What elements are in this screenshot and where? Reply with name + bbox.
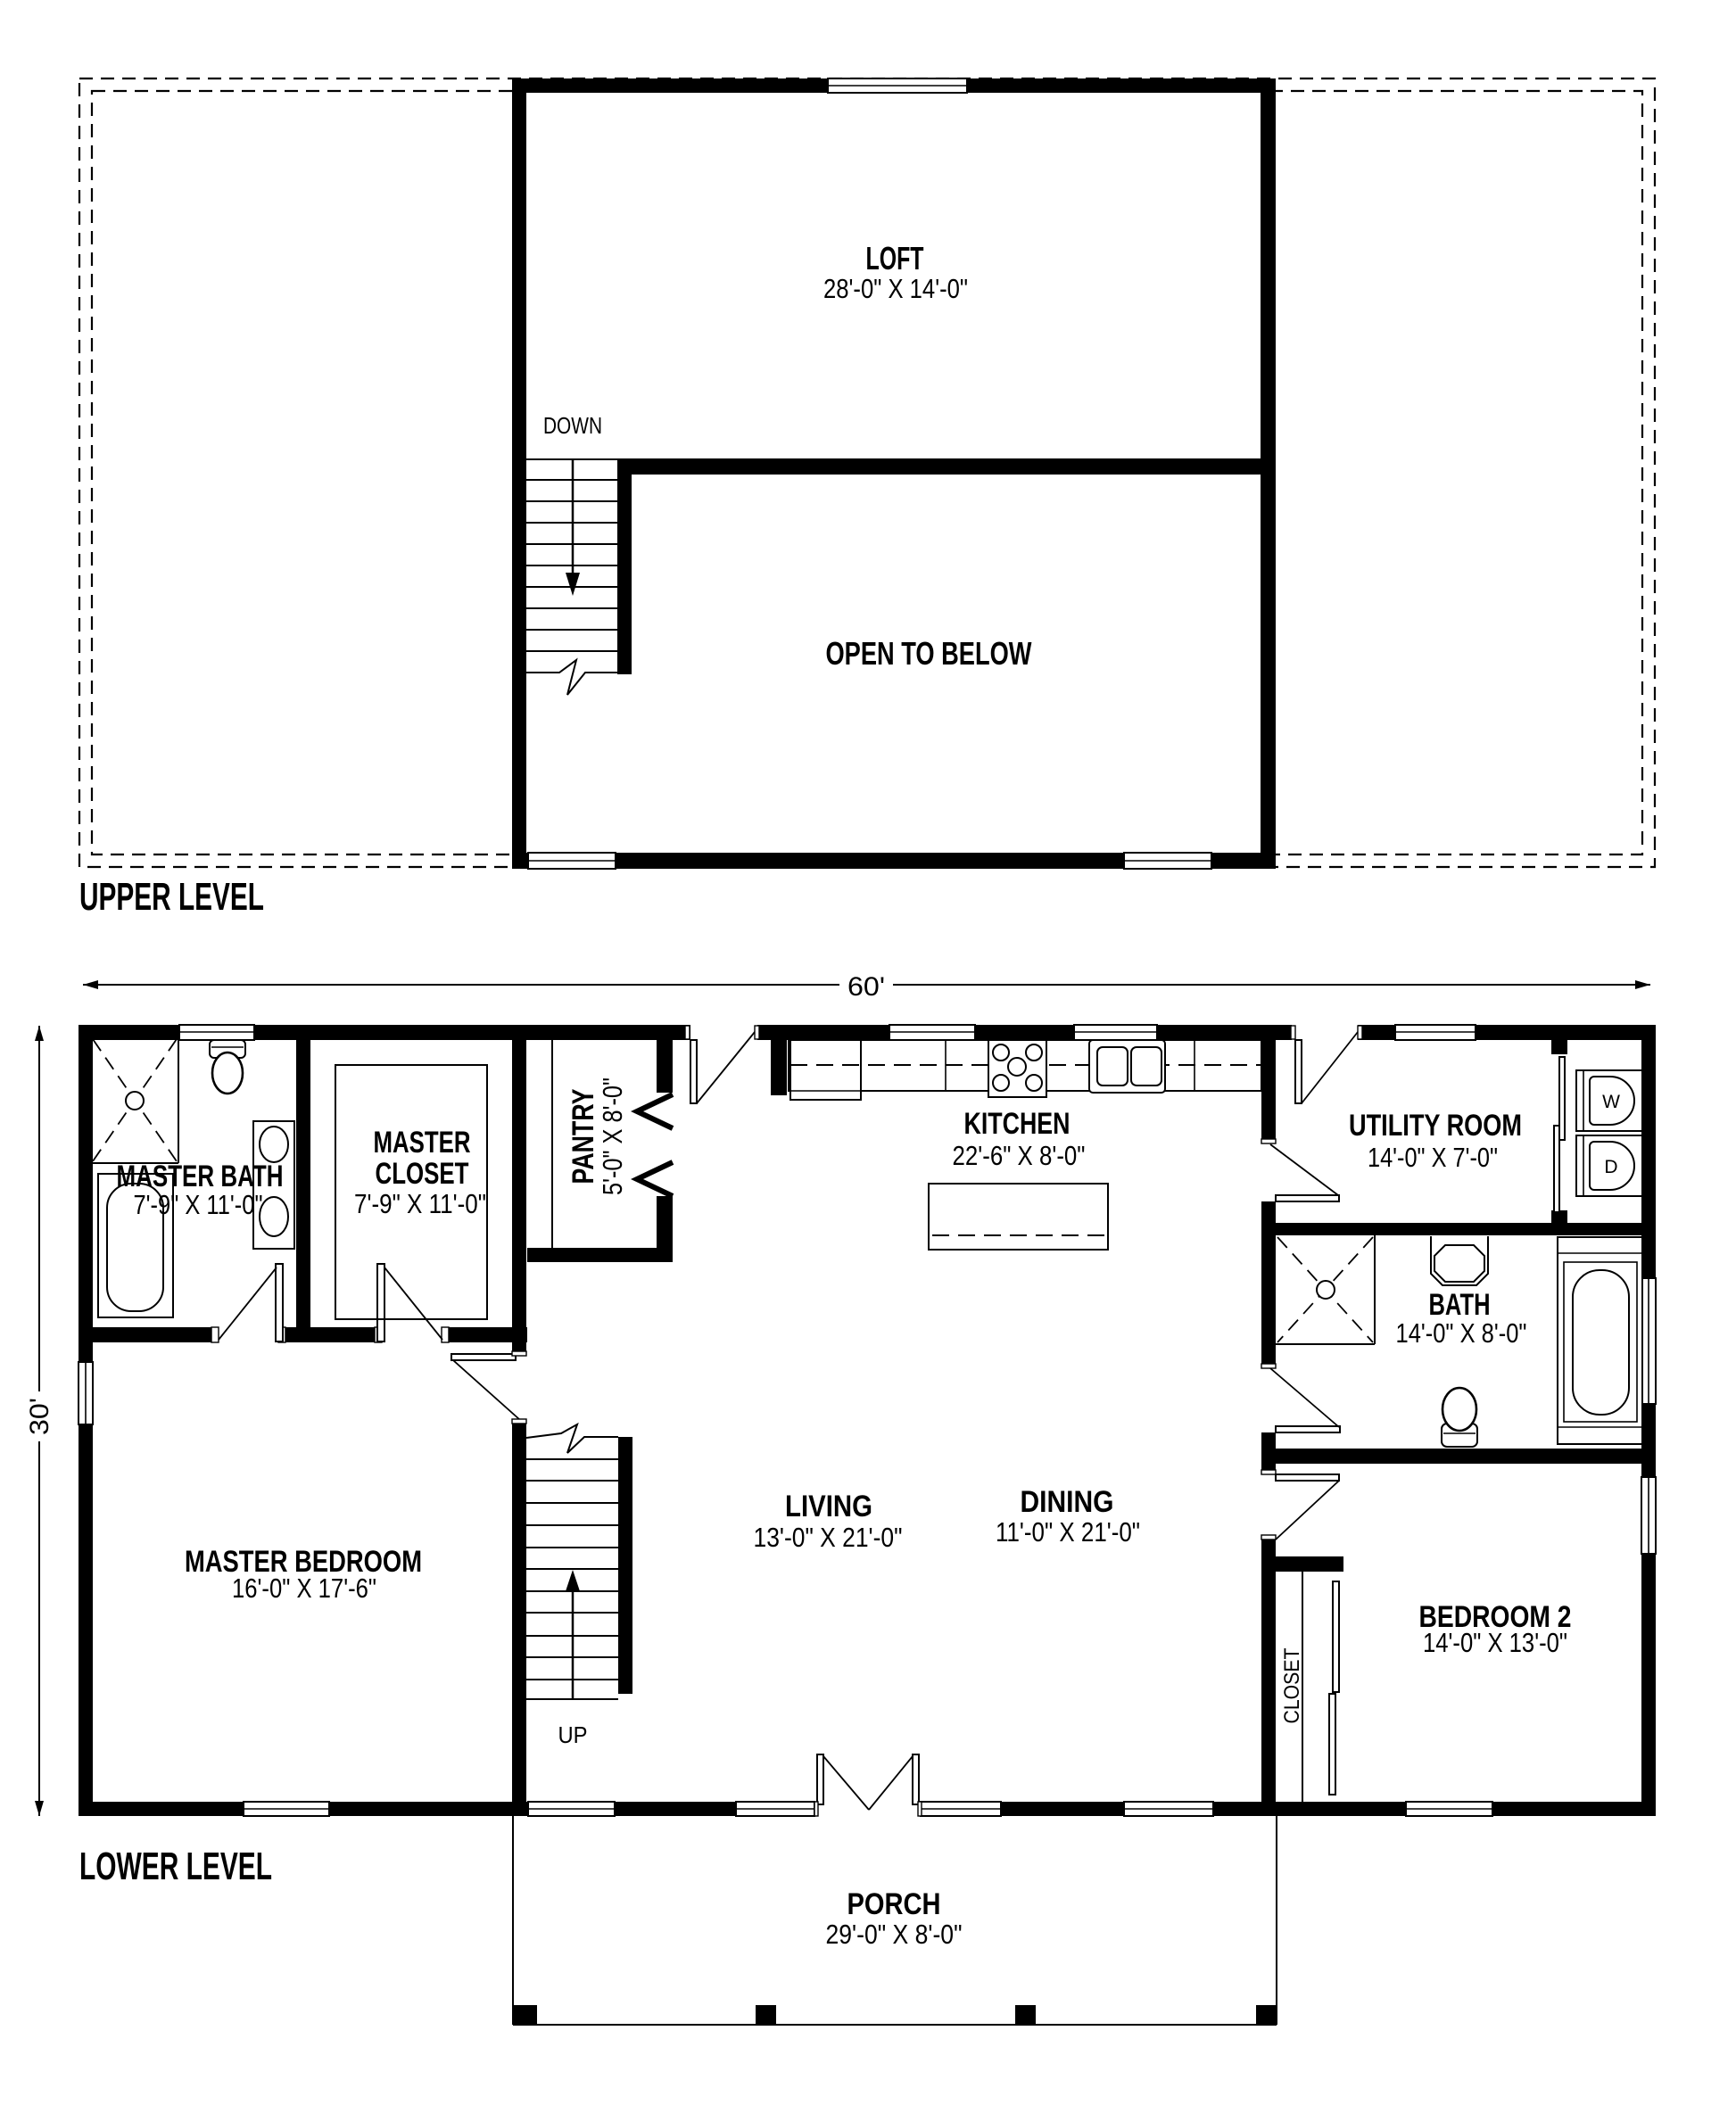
- svg-text:LIVING: LIVING: [785, 1490, 872, 1523]
- svg-text:CLOSET: CLOSET: [376, 1157, 469, 1191]
- svg-text:DOWN: DOWN: [543, 412, 602, 439]
- svg-text:7'-9" X 11'-0": 7'-9" X 11'-0": [354, 1188, 486, 1219]
- svg-text:5'-0" X 8'-0": 5'-0" X 8'-0": [597, 1077, 628, 1195]
- svg-text:UP: UP: [558, 1721, 588, 1748]
- svg-text:30': 30': [25, 1398, 54, 1435]
- svg-text:22'-6" X 8'-0": 22'-6" X 8'-0": [953, 1140, 1086, 1171]
- svg-text:16'-0" X 17'-6": 16'-0" X 17'-6": [232, 1573, 376, 1604]
- svg-text:14'-0" X 13'-0": 14'-0" X 13'-0": [1423, 1627, 1567, 1658]
- svg-text:OPEN TO BELOW: OPEN TO BELOW: [826, 635, 1032, 672]
- svg-text:D: D: [1604, 1157, 1617, 1177]
- svg-text:LOWER LEVEL: LOWER LEVEL: [79, 1845, 272, 1888]
- svg-text:60': 60': [847, 972, 885, 1002]
- svg-text:UPPER LEVEL: UPPER LEVEL: [79, 875, 264, 919]
- svg-text:14'-0" X 8'-0": 14'-0" X 8'-0": [1396, 1317, 1527, 1349]
- svg-text:PANTRY: PANTRY: [566, 1088, 600, 1184]
- svg-text:CLOSET: CLOSET: [1280, 1647, 1304, 1723]
- svg-text:13'-0" X 21'-0": 13'-0" X 21'-0": [754, 1522, 903, 1553]
- svg-text:29'-0" X 8'-0": 29'-0" X 8'-0": [826, 1919, 963, 1950]
- svg-text:PORCH: PORCH: [847, 1887, 941, 1921]
- svg-text:MASTER: MASTER: [374, 1126, 471, 1160]
- svg-text:KITCHEN: KITCHEN: [964, 1107, 1071, 1141]
- svg-text:LOFT: LOFT: [866, 240, 924, 277]
- svg-text:UTILITY ROOM: UTILITY ROOM: [1349, 1109, 1522, 1143]
- svg-text:11'-0" X 21'-0": 11'-0" X 21'-0": [996, 1516, 1140, 1548]
- svg-text:7'-9" X 11'-0": 7'-9" X 11'-0": [134, 1189, 263, 1220]
- svg-text:14'-0" X 7'-0": 14'-0" X 7'-0": [1368, 1142, 1498, 1173]
- svg-text:28'-0" X 14'-0": 28'-0" X 14'-0": [823, 273, 968, 304]
- svg-text:DINING: DINING: [1021, 1485, 1114, 1519]
- svg-text:W: W: [1602, 1092, 1620, 1112]
